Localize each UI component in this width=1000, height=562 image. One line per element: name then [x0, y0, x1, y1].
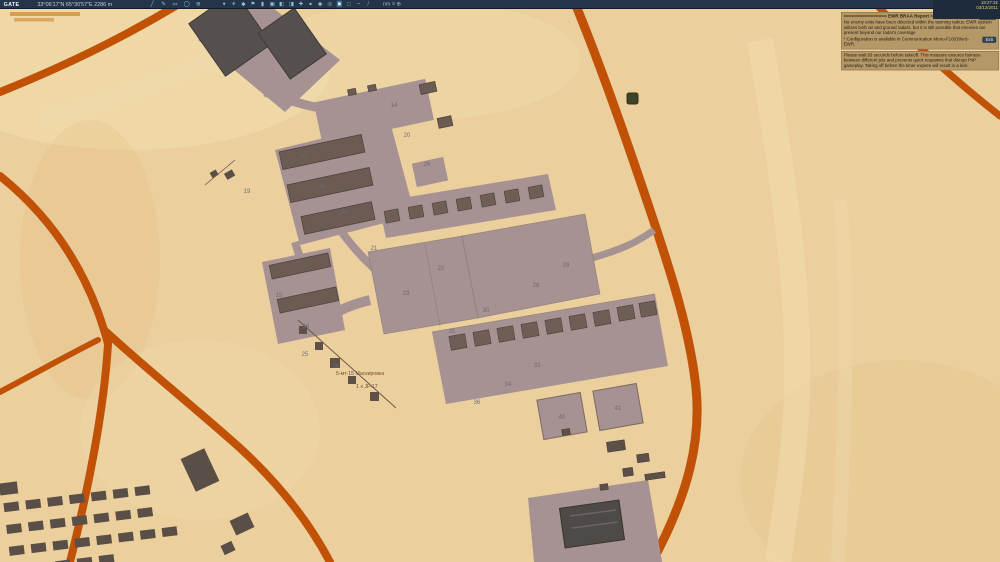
vehicle-filter-icon[interactable]: ▣	[269, 1, 274, 8]
app-window: 1420172618241921222329283031151625263334…	[0, 0, 1000, 562]
apron-number: 31	[449, 329, 456, 335]
hangar-south	[560, 500, 625, 548]
apron-number: 34	[505, 382, 512, 388]
medical-filter-icon[interactable]: ✚	[298, 1, 303, 8]
apron-number: 19	[244, 189, 251, 195]
server-rules-message: Please wait 93 seconds before takeoff. T…	[841, 51, 999, 71]
circle-tool-icon[interactable]: ◯	[184, 1, 190, 8]
zoom-tool-icon[interactable]: ⊕	[196, 1, 201, 8]
apron-number: 18	[319, 184, 326, 190]
selected-unit-label: GATE	[4, 1, 20, 7]
top-toolbar: GATE 33°06'17"N 65°30'57"E 2286 m ╱✎▭◯⊕ …	[0, 0, 1000, 9]
apron-number: 20	[404, 133, 411, 139]
mission-clock: 18:27:32 03/12/2011	[933, 0, 1000, 19]
waypoint-filter-icon[interactable]: ●	[308, 1, 313, 8]
apron-number: 28	[533, 283, 540, 289]
apron-number: 14	[391, 103, 398, 109]
slash-filter-icon[interactable]: /	[365, 1, 370, 8]
dropdown-icon[interactable]: ▾	[221, 1, 226, 8]
apron-number: 36	[474, 400, 481, 406]
apron-number: 16	[303, 324, 310, 330]
infantry-filter-icon[interactable]: ▮	[260, 1, 265, 8]
apron-number: 26	[333, 364, 340, 370]
apron-number: 25	[302, 352, 309, 358]
apron-number: 15	[276, 293, 283, 299]
apron-central-1	[368, 236, 478, 334]
message-panel: ================ EWR BRAA Report =======…	[841, 12, 999, 121]
apron-number: 17	[301, 154, 308, 160]
apron-number: 23	[403, 291, 410, 297]
ewr-report-footnote: * Configuration is available in Communic…	[844, 36, 981, 46]
ewr-report-body: No enemy units have been detected within…	[844, 20, 996, 36]
ring-filter-icon[interactable]: ◎	[327, 1, 332, 8]
svg-text:5-мт-15 Маскировка: 5-мт-15 Маскировка	[336, 371, 384, 377]
airbase-filter-icon[interactable]: ◨	[289, 1, 294, 8]
unit-marker[interactable]	[627, 93, 638, 104]
helicopter-filter-icon[interactable]: ◆	[241, 1, 246, 8]
apron-number: 40	[559, 415, 566, 421]
server-rules-body: Please wait 93 seconds before takeoff. T…	[844, 52, 996, 68]
cursor-coordinates: 33°06'17"N 65°30'57"E 2286 m	[37, 1, 112, 7]
filter-tools-group: ▾✈◆⚑▮▣◧◨✚●◉◎■□~/	[221, 1, 370, 8]
grid-filter-icon[interactable]: □	[346, 1, 351, 8]
mission-date: 03/12/2011	[964, 5, 998, 10]
svg-text:1 х JF-17: 1 х JF-17	[356, 384, 378, 390]
aircraft-filter-icon[interactable]: ✈	[231, 1, 236, 8]
eraser-icon[interactable]: ▭	[172, 1, 177, 8]
apron-number: 21	[371, 246, 378, 252]
apron-number: 30	[483, 308, 490, 314]
apron-number: 41	[615, 406, 622, 412]
apron-number: 29	[563, 263, 570, 269]
flag-filter-icon[interactable]: ⚑	[250, 1, 255, 8]
beacon-filter-icon[interactable]: ◉	[317, 1, 322, 8]
draw-tools-group: ╱✎▭◯⊕	[149, 1, 201, 8]
ship-filter-icon[interactable]: ◧	[279, 1, 284, 8]
label-filter-icon[interactable]: ■	[337, 1, 342, 8]
map-scale-indicator: nm ≡ ⊕	[383, 1, 401, 8]
apron-number: 24	[341, 210, 348, 216]
apron-number: 26	[424, 162, 431, 168]
ruler-icon[interactable]: ╱	[149, 1, 154, 8]
pencil-icon[interactable]: ✎	[161, 1, 166, 8]
route-filter-icon[interactable]: ~	[356, 1, 361, 8]
exit-button[interactable]: Exit	[983, 36, 996, 42]
apron-number: 33	[534, 363, 541, 369]
apron-number: 22	[438, 266, 445, 272]
